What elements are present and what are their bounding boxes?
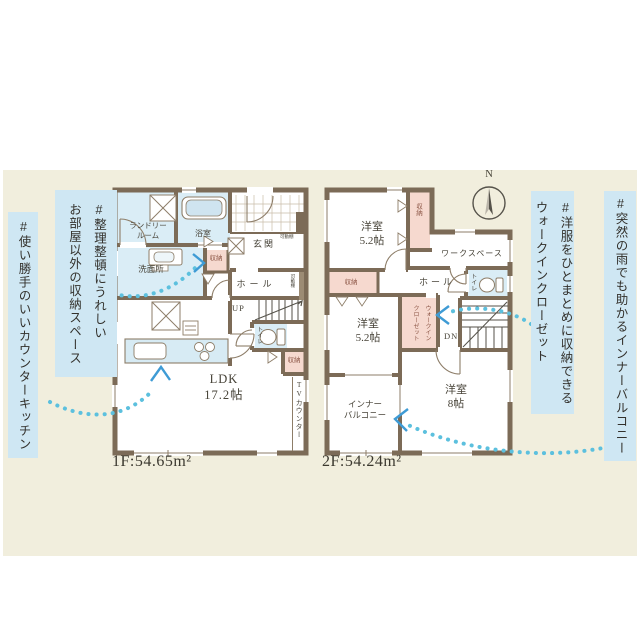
room-label-ldk: LDK 17.2帖 — [192, 371, 256, 404]
label-storage-a-2f: 収納 — [413, 203, 421, 233]
room-label-washroom: 洗面所 — [126, 264, 176, 275]
room-label-bedroom-b: 洋室 5.2帖 — [340, 317, 396, 346]
cupboard-icon — [183, 321, 198, 335]
label-shelf-a: 可動棚 — [280, 234, 294, 240]
room-label-toilet-2f: トイレ — [468, 273, 476, 295]
callout-walk-in-closet: #洋服をひとまとめに収納できる ウォークインクローゼット — [531, 191, 574, 414]
room-label-bedroom-c: 洋室 8帖 — [428, 383, 484, 412]
compass-icon — [473, 187, 505, 219]
label-tv-counter: TVカウンター — [294, 381, 303, 453]
entrance-shelf-icon — [296, 212, 304, 233]
room-label-bedroom-a: 洋室 5.2帖 — [344, 220, 400, 249]
floorplan-page: #整理整頓にうれしい お部屋以外の収納スペース #使い勝手のいいカウンターキッチ… — [0, 0, 640, 640]
callout-inner-balcony: #突然の雨でも助かるインナーバルコニー — [604, 191, 636, 461]
room-label-inner-balcony: インナー バルコニー — [333, 399, 397, 421]
label-stairs-up: UP — [232, 303, 245, 314]
label-stairs-down: DN — [444, 331, 458, 342]
room-label-laundry: ランドリー ルーム — [120, 221, 176, 241]
room-label-toilet-1f: トイレ — [254, 326, 262, 348]
room-label-bath: 浴室 — [180, 229, 226, 239]
callout-counter-kitchen: #使い勝手のいいカウンターキッチン — [8, 212, 38, 458]
compass-north-label: N — [481, 168, 497, 182]
hall-shelf-icon — [299, 272, 304, 300]
area-label-1f: 1F:54.65m² — [112, 452, 192, 473]
label-shelf-b: 可動棚 — [290, 274, 296, 300]
bathtub-icon — [182, 197, 226, 219]
label-storage-a-1f: 収納 — [204, 255, 228, 263]
callout-storage-space: #整理整頓にうれしい お部屋以外の収納スペース — [55, 190, 117, 377]
label-wic: ウォークイン クローゼット — [405, 300, 433, 346]
toilet-icon-1f — [260, 329, 285, 345]
label-storage-b-1f: 収納 — [283, 357, 305, 365]
area-label-2f: 2F:54.24m² — [322, 452, 402, 473]
label-storage-b-2f: 収納 — [336, 279, 366, 287]
laundry-closet-icon — [150, 195, 176, 221]
room-label-hall-2f: ホール — [415, 277, 459, 289]
kitchen-counter-icon — [125, 339, 228, 363]
room-label-entrance: 玄関 — [244, 239, 284, 251]
toilet-icon-2f — [480, 278, 504, 292]
entrance-closet-icon — [228, 238, 244, 254]
refrigerator-space-icon — [152, 302, 180, 330]
room-label-workspace: ワークスペース — [432, 249, 512, 259]
room-label-hall-1f: ホール — [234, 279, 278, 291]
